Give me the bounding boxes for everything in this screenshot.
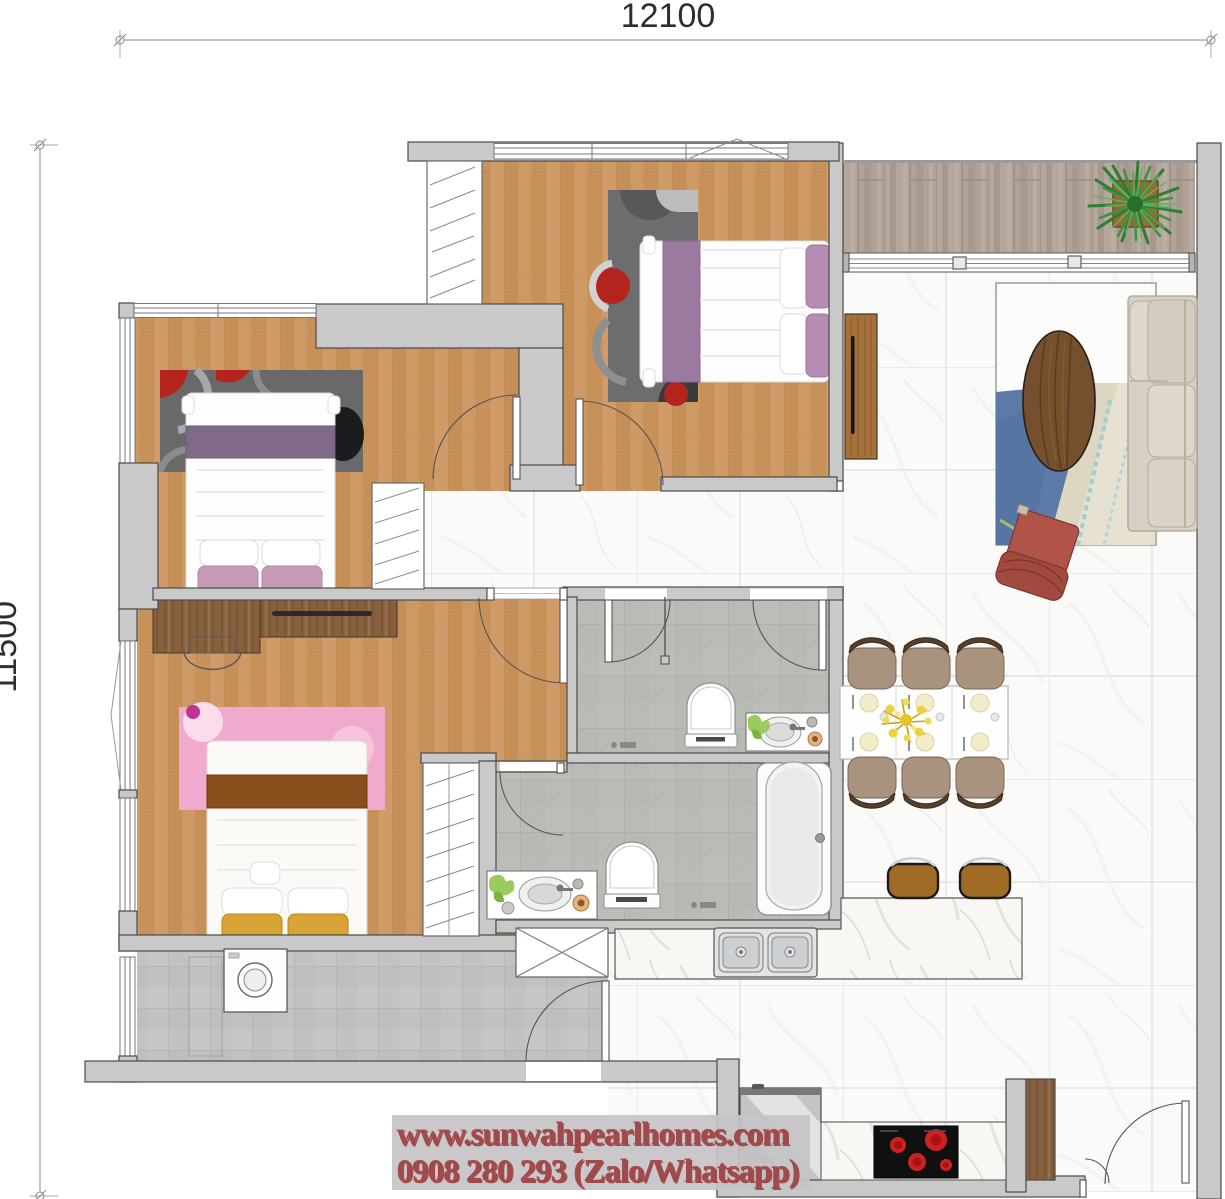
svg-text:0908 280 293 (Zalo/Whatsapp): 0908 280 293 (Zalo/Whatsapp) [398, 1155, 801, 1191]
svg-text:11500: 11500 [0, 601, 24, 693]
svg-text:12100: 12100 [621, 0, 716, 35]
svg-text:www.sunwahpearlhomes.com: www.sunwahpearlhomes.com [398, 1118, 791, 1154]
